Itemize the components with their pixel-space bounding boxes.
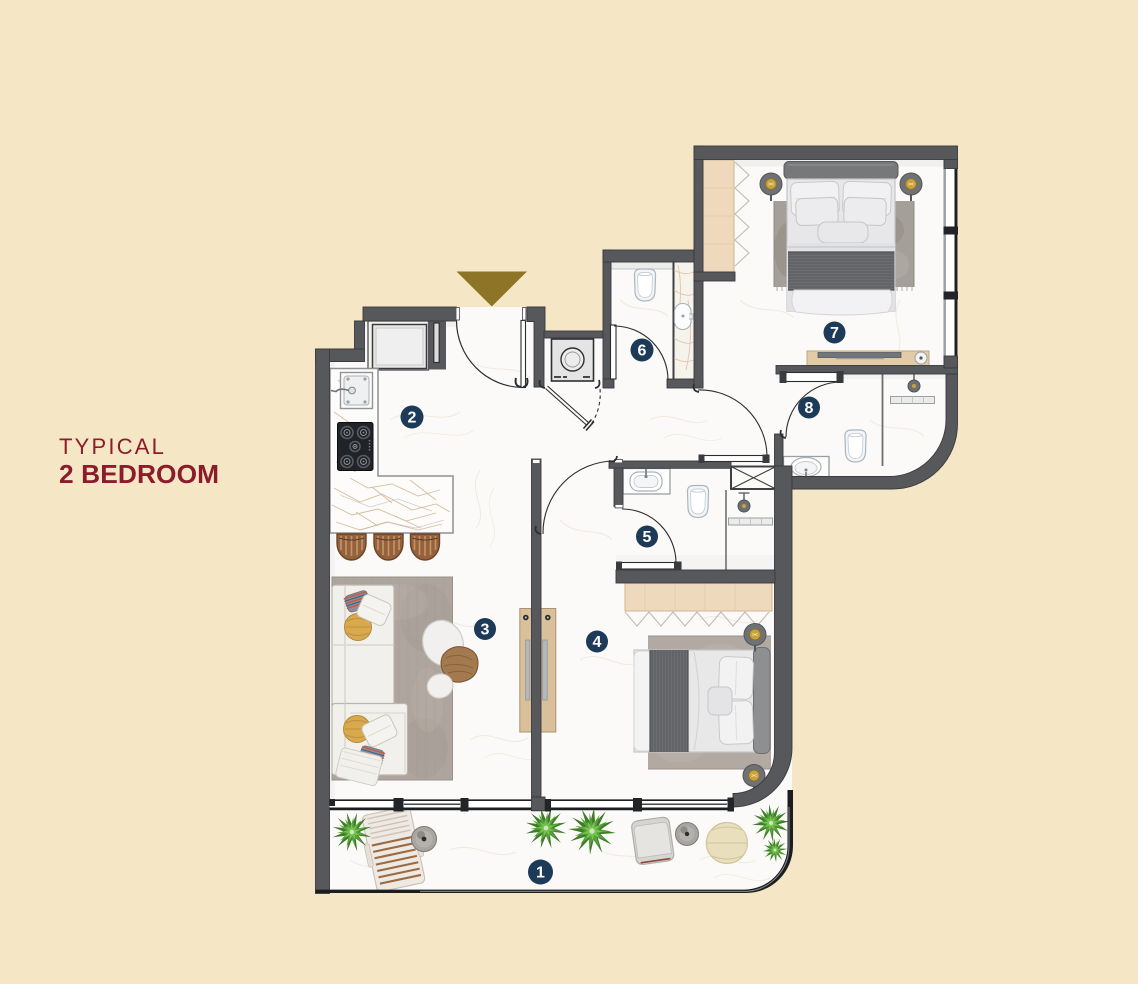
svg-text:TYPICAL: TYPICAL [59,434,166,459]
svg-text:2 BEDROOM: 2 BEDROOM [59,459,219,489]
svg-text:2: 2 [408,410,417,427]
svg-text:4: 4 [593,634,602,651]
svg-text:8: 8 [805,400,814,417]
svg-text:7: 7 [830,325,839,342]
svg-text:1: 1 [536,865,545,882]
svg-text:6: 6 [638,343,647,360]
svg-text:5: 5 [643,529,652,546]
svg-text:3: 3 [481,622,490,639]
